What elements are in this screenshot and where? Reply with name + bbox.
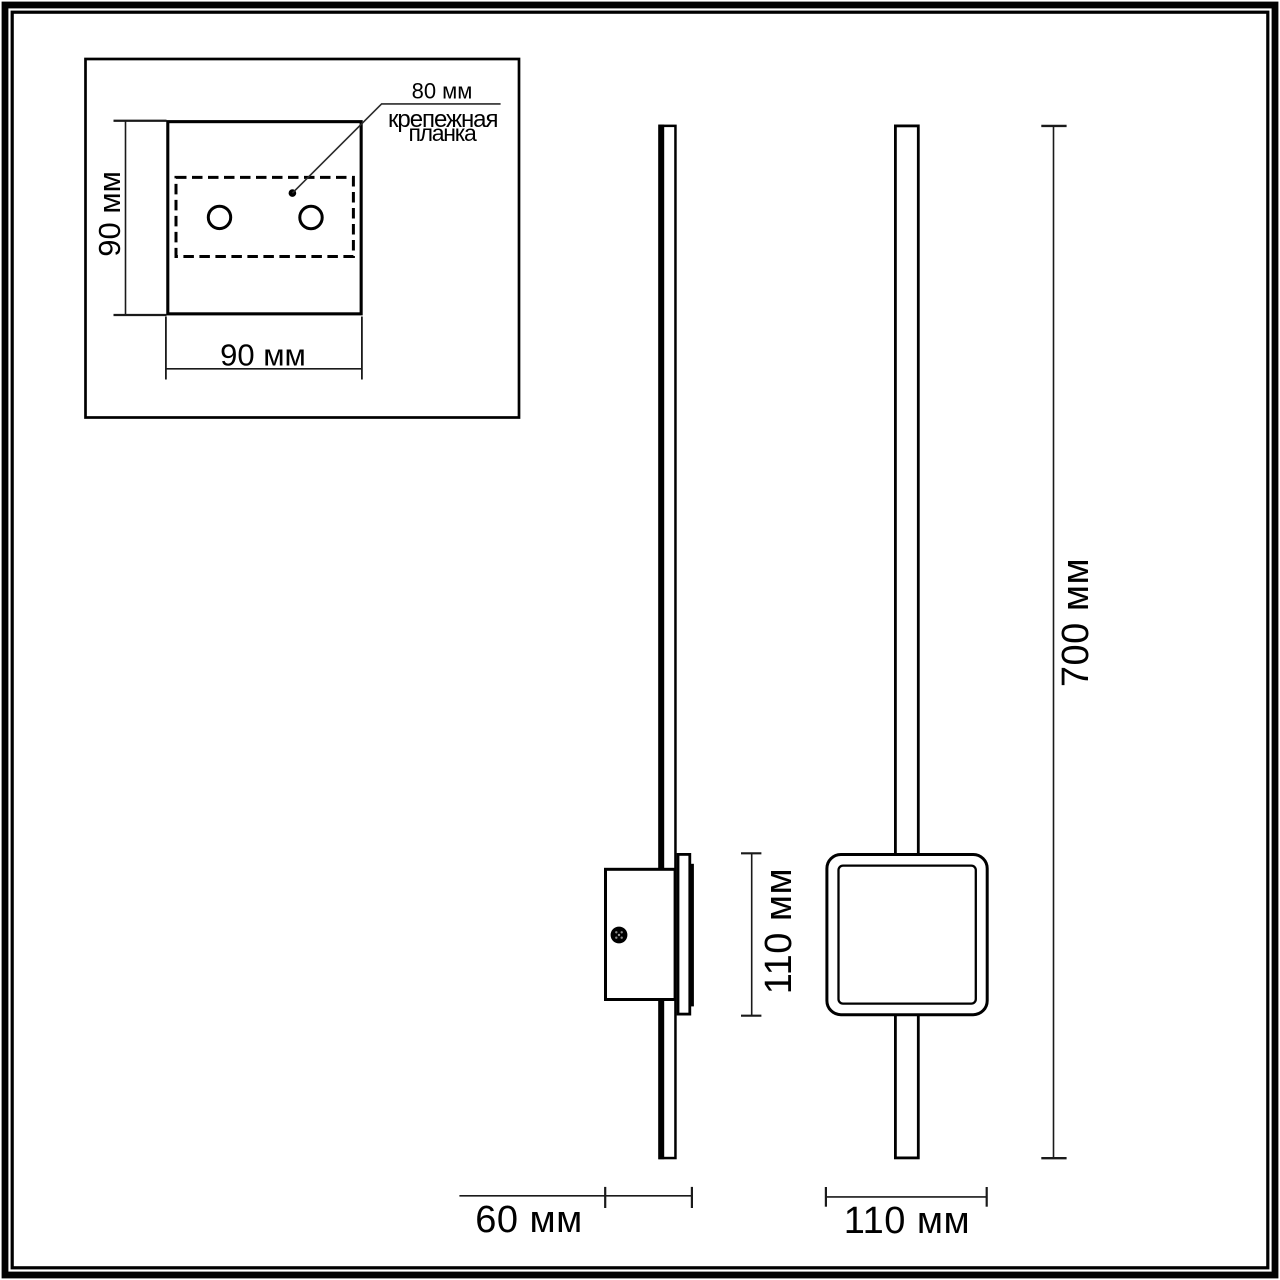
- svg-text:110 мм: 110 мм: [844, 1200, 970, 1242]
- svg-text:80 мм: 80 мм: [412, 79, 473, 104]
- svg-text:планка: планка: [409, 120, 477, 146]
- svg-text:700 мм: 700 мм: [1055, 558, 1097, 687]
- svg-text:60 мм: 60 мм: [475, 1199, 583, 1241]
- svg-text:110 мм: 110 мм: [758, 868, 800, 994]
- svg-text:90 мм: 90 мм: [92, 171, 127, 257]
- svg-text:90 мм: 90 мм: [220, 338, 306, 373]
